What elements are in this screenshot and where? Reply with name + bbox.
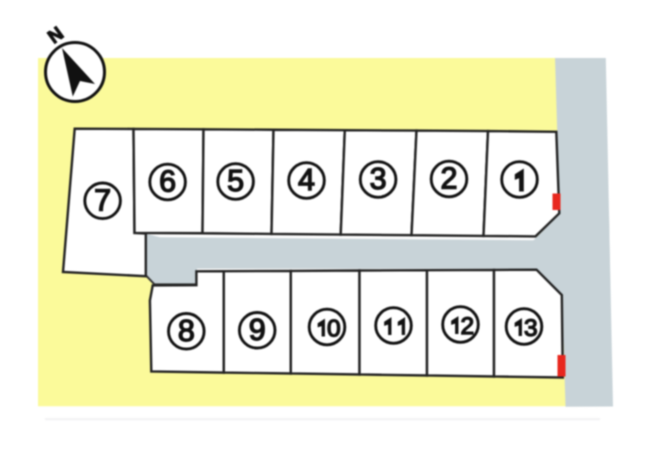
svg-text:4: 4 [298,163,315,197]
svg-text:3: 3 [370,162,387,196]
svg-text:0: 0 [327,316,341,343]
svg-text:9: 9 [249,313,266,347]
svg-text:7: 7 [94,184,111,218]
svg-text:5: 5 [227,164,244,198]
svg-text:2: 2 [460,313,474,340]
svg-text:2: 2 [441,162,458,196]
svg-text:6: 6 [159,165,176,199]
svg-text:8: 8 [178,314,195,348]
svg-text:3: 3 [524,315,538,342]
